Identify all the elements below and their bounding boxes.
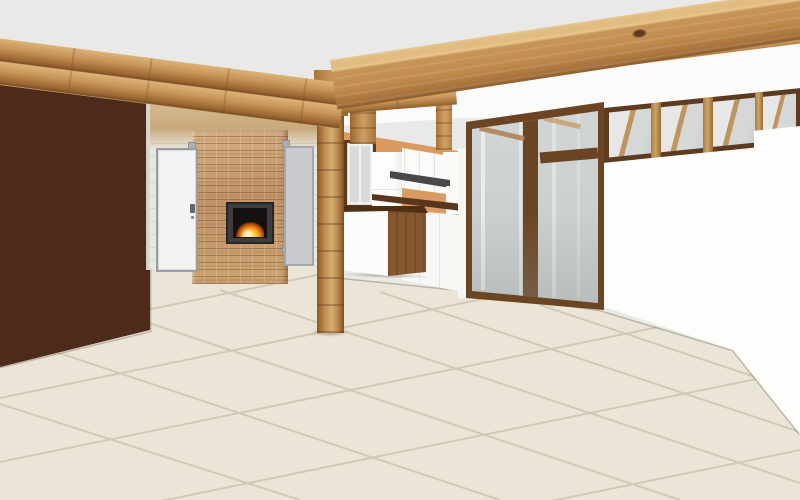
door-handle <box>190 204 195 213</box>
clerestory-post <box>703 97 713 154</box>
clerestory-pane <box>713 98 755 147</box>
kitchen-return-wall <box>458 148 467 298</box>
clerestory-pane <box>661 103 703 152</box>
fire-flames <box>236 213 264 237</box>
clerestory-post <box>651 102 661 159</box>
log-post <box>317 110 344 333</box>
interior-door-right <box>284 146 314 266</box>
interior-render-scene <box>0 0 800 500</box>
clerestory-pane <box>609 108 651 157</box>
door-keyhole <box>191 216 194 219</box>
fireplace-firebox <box>233 208 267 238</box>
glass-shading <box>472 210 598 302</box>
glazed-door-rail <box>540 147 599 163</box>
kitchen-window-mullion <box>359 144 361 204</box>
